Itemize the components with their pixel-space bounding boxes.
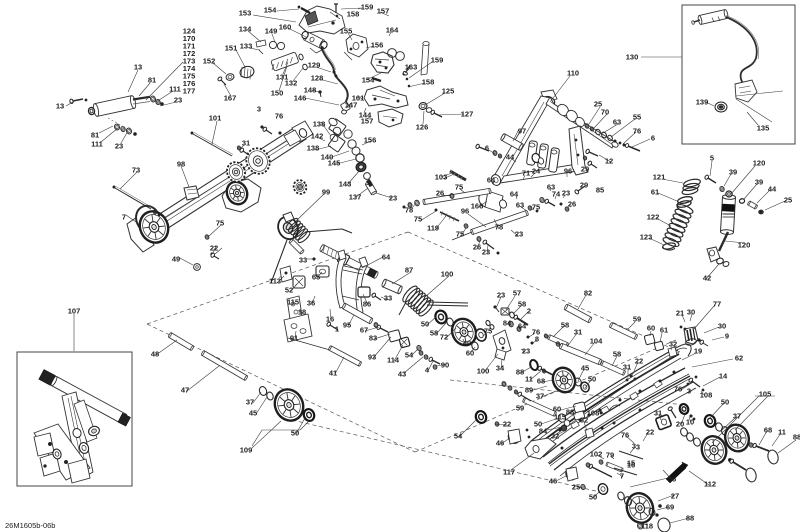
svg-text:37: 37 [246,398,254,407]
svg-text:75: 75 [455,183,463,192]
svg-text:37: 37 [536,392,544,401]
svg-text:120: 120 [738,241,751,250]
svg-text:159: 159 [361,3,374,12]
svg-text:133: 133 [240,42,253,51]
svg-text:108: 108 [700,391,713,400]
svg-text:122: 122 [647,213,660,222]
svg-text:90: 90 [441,361,449,370]
svg-text:110: 110 [567,69,579,78]
svg-text:54: 54 [454,432,463,441]
svg-text:55: 55 [633,113,641,122]
svg-text:157: 157 [361,117,374,126]
svg-text:97: 97 [518,127,526,136]
svg-text:111: 111 [169,85,181,94]
svg-text:2: 2 [527,307,531,316]
svg-text:115: 115 [287,298,299,307]
svg-text:42: 42 [703,274,711,283]
svg-text:134: 134 [239,25,252,34]
svg-text:78: 78 [495,223,503,232]
svg-text:36: 36 [307,299,315,308]
svg-text:22: 22 [635,357,643,366]
svg-text:24: 24 [532,167,541,176]
svg-text:107: 107 [68,307,81,316]
svg-text:23: 23 [482,248,490,257]
svg-text:100: 100 [441,270,454,279]
svg-text:67: 67 [360,326,368,335]
svg-text:19: 19 [694,347,702,356]
svg-text:86: 86 [668,475,676,484]
svg-text:49: 49 [172,255,180,264]
svg-text:95: 95 [343,321,351,330]
svg-text:114: 114 [387,356,400,365]
svg-text:14: 14 [719,372,728,381]
svg-text:138: 138 [307,144,320,153]
svg-text:119: 119 [427,224,439,233]
svg-text:118: 118 [641,522,653,531]
svg-text:31: 31 [574,328,582,337]
svg-text:63: 63 [516,201,524,210]
svg-text:7: 7 [620,472,624,481]
svg-text:26: 26 [473,243,481,252]
svg-text:40: 40 [463,339,471,348]
svg-text:105: 105 [759,390,772,399]
svg-text:75: 75 [456,230,464,239]
svg-text:9: 9 [725,332,729,341]
svg-text:65: 65 [312,273,320,282]
svg-text:98: 98 [177,160,185,169]
svg-text:3: 3 [257,105,261,114]
svg-text:27: 27 [671,492,679,501]
svg-text:32: 32 [669,340,677,349]
svg-text:3: 3 [636,443,640,452]
svg-text:50: 50 [291,429,299,438]
svg-text:11: 11 [778,428,786,437]
svg-text:58: 58 [518,300,526,309]
svg-text:138: 138 [313,120,326,129]
svg-text:87: 87 [405,266,413,275]
svg-text:91: 91 [290,334,298,343]
svg-text:6: 6 [485,144,489,153]
svg-text:166: 166 [471,202,484,211]
svg-text:88: 88 [793,433,800,442]
svg-text:158: 158 [347,10,360,19]
svg-text:32: 32 [551,432,559,441]
svg-text:77: 77 [713,300,721,309]
svg-text:83: 83 [369,334,377,343]
svg-text:10: 10 [686,418,694,427]
svg-text:25: 25 [784,196,792,205]
svg-text:46: 46 [549,477,557,486]
svg-text:153: 153 [239,9,252,18]
svg-text:59: 59 [516,404,524,413]
svg-text:45: 45 [249,409,257,418]
svg-text:70: 70 [601,108,609,117]
svg-text:41: 41 [329,369,337,378]
svg-text:129: 129 [308,61,321,70]
svg-text:45: 45 [581,364,589,373]
svg-text:74: 74 [552,190,561,199]
svg-text:125: 125 [442,87,455,96]
svg-text:81: 81 [148,76,156,85]
svg-text:137: 137 [349,193,362,202]
svg-text:68: 68 [537,377,545,386]
svg-text:58: 58 [430,329,438,338]
svg-text:163: 163 [405,63,418,72]
svg-text:150: 150 [271,89,284,98]
svg-text:30: 30 [687,308,695,317]
svg-text:64: 64 [518,322,527,331]
svg-text:6: 6 [651,134,655,143]
svg-text:72: 72 [440,333,448,342]
svg-text:99: 99 [322,188,330,197]
svg-text:76: 76 [621,431,629,440]
svg-text:29: 29 [580,181,588,190]
svg-text:26: 26 [436,189,444,198]
svg-text:22: 22 [503,420,511,429]
svg-text:50: 50 [721,398,729,407]
svg-text:25: 25 [594,100,602,109]
svg-text:33: 33 [299,256,307,265]
svg-text:120: 120 [753,159,766,168]
svg-text:48: 48 [151,350,159,359]
svg-text:96: 96 [461,207,469,216]
svg-text:62: 62 [735,354,743,363]
svg-text:121: 121 [653,173,666,182]
svg-text:115: 115 [554,413,566,422]
svg-text:64: 64 [382,253,391,262]
svg-text:52: 52 [285,286,293,295]
svg-text:128: 128 [311,74,324,83]
svg-text:23: 23 [115,142,123,151]
svg-text:50: 50 [421,320,429,329]
svg-text:76: 76 [275,112,283,121]
svg-text:39: 39 [755,178,763,187]
svg-text:23: 23 [389,194,397,203]
svg-text:22: 22 [646,428,654,437]
svg-text:23: 23 [497,291,505,300]
svg-text:159: 159 [431,56,444,65]
svg-text:164: 164 [386,26,399,35]
svg-text:5: 5 [710,154,714,163]
svg-text:177: 177 [183,87,196,96]
svg-text:58: 58 [613,350,621,359]
svg-text:108: 108 [587,409,600,418]
svg-text:100: 100 [477,367,490,376]
svg-text:50: 50 [588,375,596,384]
svg-text:111: 111 [91,140,103,149]
svg-text:30: 30 [718,322,726,331]
svg-text:46: 46 [496,439,504,448]
svg-text:103: 103 [435,173,448,182]
svg-text:44: 44 [768,185,777,194]
svg-text:75: 75 [216,219,224,228]
svg-text:130: 130 [626,53,639,62]
svg-text:167: 167 [224,94,237,103]
svg-text:156: 156 [364,136,377,145]
svg-text:82: 82 [584,289,592,298]
svg-text:23: 23 [174,96,182,105]
svg-text:57: 57 [513,289,521,298]
svg-text:61: 61 [660,326,668,335]
svg-text:86: 86 [363,300,371,309]
svg-text:155: 155 [340,27,353,36]
svg-text:102: 102 [590,450,603,459]
svg-text:79: 79 [606,451,614,460]
svg-text:64: 64 [487,176,496,185]
svg-text:58: 58 [561,321,569,330]
svg-text:23: 23 [562,189,570,198]
svg-text:93: 93 [368,353,376,362]
svg-text:88: 88 [566,408,574,417]
svg-text:26M1605b-06b: 26M1605b-06b [5,521,55,530]
svg-text:60: 60 [647,324,655,333]
svg-text:16: 16 [326,315,334,324]
svg-text:68: 68 [764,426,772,435]
svg-text:143: 143 [339,180,352,189]
svg-text:16: 16 [627,461,635,470]
svg-text:88: 88 [516,368,524,377]
svg-text:127: 127 [461,110,474,119]
svg-text:31: 31 [242,139,250,148]
svg-text:60: 60 [466,349,474,358]
svg-text:63: 63 [613,118,621,127]
svg-text:59: 59 [633,315,641,324]
svg-text:135: 135 [757,124,770,133]
svg-text:44: 44 [506,153,515,162]
svg-text:112: 112 [704,480,716,489]
svg-text:76: 76 [674,385,682,394]
svg-text:75: 75 [484,327,492,336]
svg-text:160: 160 [279,23,292,32]
svg-text:31: 31 [623,363,631,372]
svg-text:76: 76 [633,127,641,136]
svg-text:157: 157 [377,7,390,16]
svg-text:25: 25 [572,483,580,492]
svg-text:73: 73 [132,166,140,175]
svg-text:11: 11 [525,375,533,384]
svg-text:23: 23 [522,347,530,356]
svg-text:158: 158 [422,78,435,87]
svg-text:3: 3 [687,387,691,396]
svg-text:101: 101 [209,114,222,123]
svg-text:81: 81 [91,131,99,140]
svg-text:8: 8 [535,335,539,344]
svg-text:75: 75 [414,215,422,224]
svg-text:12: 12 [605,157,613,166]
svg-text:132: 132 [285,79,298,88]
svg-text:64: 64 [510,190,519,199]
svg-text:54: 54 [405,351,414,360]
svg-text:21: 21 [676,309,684,318]
svg-text:156: 156 [371,41,384,50]
svg-text:22: 22 [210,244,218,253]
svg-text:78: 78 [405,206,413,215]
svg-text:147: 147 [345,101,358,110]
svg-text:47: 47 [181,386,189,395]
svg-text:71: 71 [522,169,530,178]
svg-text:85: 85 [596,186,604,195]
svg-text:61: 61 [651,188,659,197]
svg-text:26: 26 [568,200,576,209]
svg-text:149: 149 [265,27,278,36]
svg-text:84: 84 [503,319,512,328]
svg-text:145: 145 [328,159,341,168]
svg-text:109: 109 [240,446,253,455]
svg-text:154: 154 [362,76,375,85]
svg-text:33: 33 [384,294,392,303]
svg-text:39: 39 [729,168,737,177]
svg-text:1: 1 [335,325,339,334]
svg-text:43: 43 [398,370,406,379]
svg-text:113: 113 [269,277,281,286]
svg-text:69: 69 [666,503,674,512]
svg-text:34: 34 [496,364,505,373]
svg-text:117: 117 [503,468,515,477]
svg-text:13: 13 [134,63,142,72]
svg-text:96: 96 [564,167,572,176]
svg-text:104: 104 [590,337,603,346]
svg-text:152: 152 [203,57,216,66]
svg-text:20: 20 [676,420,684,429]
svg-text:29: 29 [581,165,589,174]
svg-text:13: 13 [56,102,64,111]
svg-text:89: 89 [525,386,533,395]
svg-text:7: 7 [122,213,126,222]
svg-text:151: 151 [225,44,238,53]
svg-text:123: 123 [640,233,653,242]
svg-text:37: 37 [733,412,741,421]
svg-text:126: 126 [416,123,429,132]
svg-text:146: 146 [294,94,307,103]
svg-text:142: 142 [311,132,324,141]
svg-text:154: 154 [264,6,277,15]
svg-text:139: 139 [696,98,709,107]
svg-text:18: 18 [298,308,306,317]
svg-text:50: 50 [589,493,597,502]
svg-text:88: 88 [686,514,694,523]
svg-text:75: 75 [532,203,540,212]
svg-text:23: 23 [515,230,523,239]
svg-text:84: 84 [539,427,548,436]
svg-text:31: 31 [654,409,662,418]
